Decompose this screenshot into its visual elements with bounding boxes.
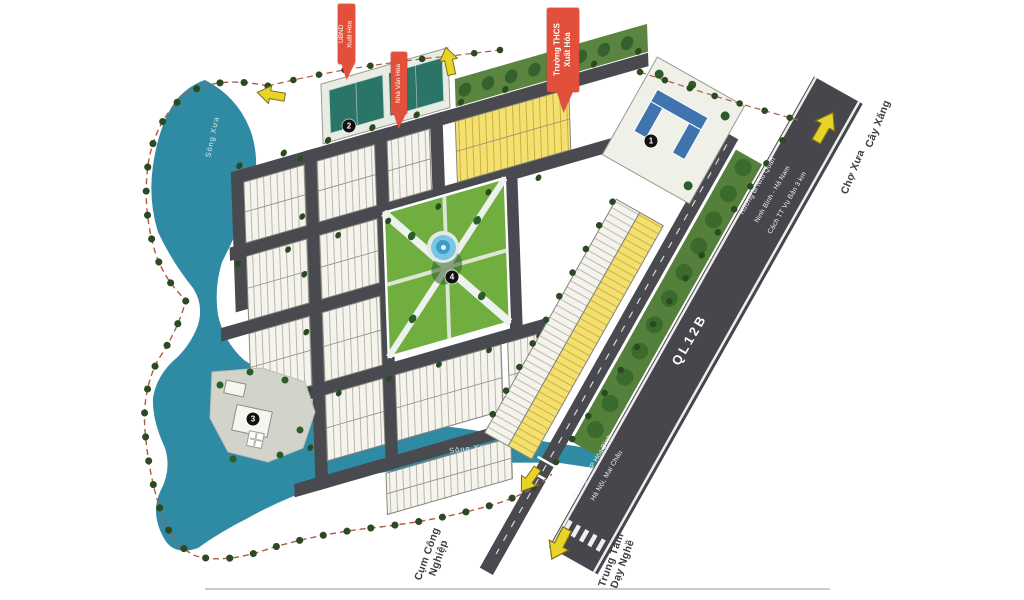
marker-2-number: 2: [347, 122, 351, 131]
fountain-icon: [427, 231, 459, 263]
marker-4-number: 4: [450, 273, 454, 282]
site-plan-svg: [0, 0, 1024, 600]
callout-culture-house: Nhà Văn Hóa: [391, 52, 407, 114]
callout-culture-house-text: Nhà Văn Hóa: [395, 63, 403, 102]
marker-1-number: 1: [649, 137, 653, 146]
callout-committee: UBND Xuất Hóa: [338, 4, 355, 64]
callout-school: Trường THCS Xuất Hóa: [547, 8, 579, 92]
master-plan-map: Sông Xưa Sông Xưa QL12B Hướng đi Nho Qua…: [0, 0, 1024, 600]
bottom-border-line: [205, 588, 830, 590]
callout-committee-text: UBND Xuất Hóa: [338, 20, 355, 47]
numbered-marker-2: 2: [343, 120, 356, 133]
numbered-marker-3: 3: [247, 413, 260, 426]
callout-school-text: Trường THCS Xuất Hóa: [553, 24, 574, 77]
marker-3-number: 3: [251, 415, 255, 424]
arrow-northwest: [256, 84, 287, 107]
lot-block: [387, 129, 431, 202]
road-v3b: [430, 112, 446, 203]
peninsula-facility: [210, 368, 315, 463]
numbered-marker-1: 1: [645, 135, 658, 148]
numbered-marker-4: 4: [446, 271, 459, 284]
